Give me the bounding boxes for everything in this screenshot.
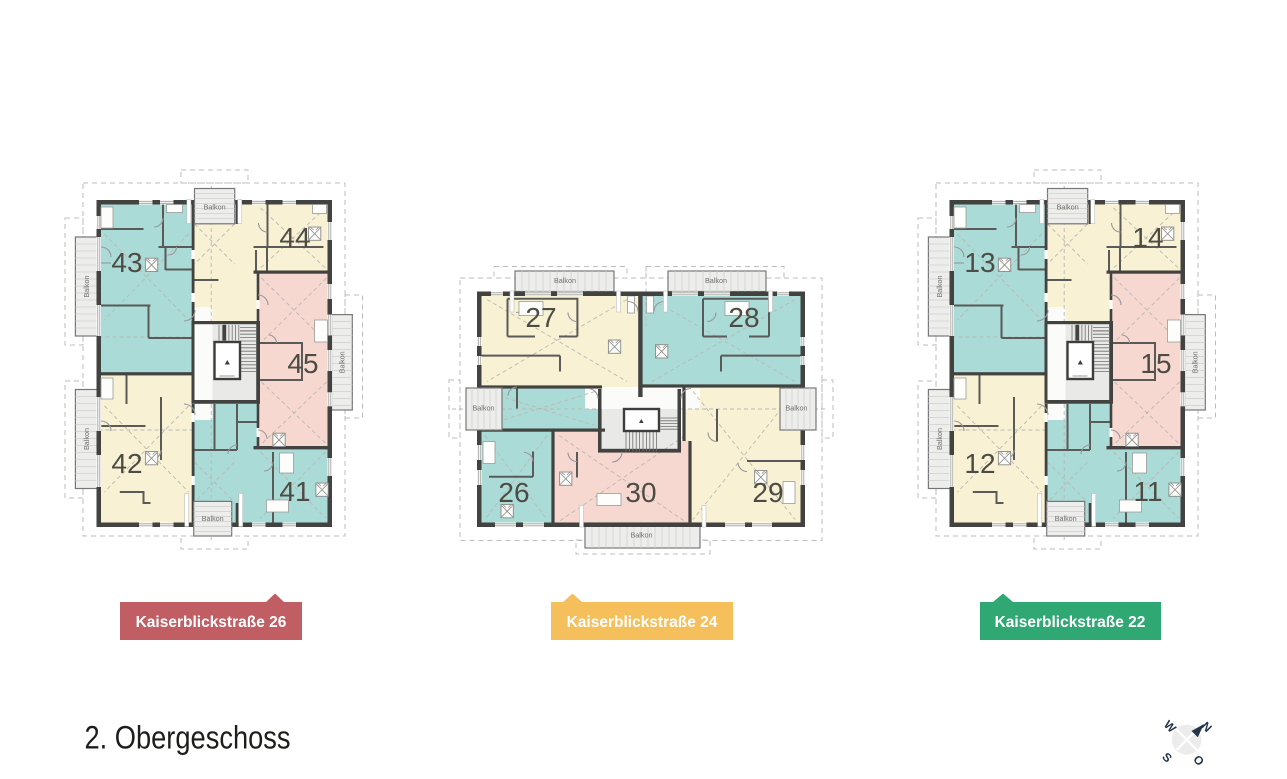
svg-text:2. Obergeschoss: 2. Obergeschoss	[85, 720, 291, 756]
svg-text:Balkon: Balkon	[786, 404, 808, 413]
svg-text:11: 11	[1133, 476, 1162, 507]
svg-text:44: 44	[279, 222, 310, 253]
svg-text:28: 28	[728, 302, 759, 333]
svg-text:42: 42	[111, 448, 142, 479]
svg-text:Balkon: Balkon	[204, 203, 226, 212]
svg-text:Balkon: Balkon	[1057, 203, 1079, 212]
svg-text:30: 30	[625, 477, 656, 508]
svg-text:45: 45	[287, 348, 318, 379]
svg-text:Kaiserblickstraße 22: Kaiserblickstraße 22	[995, 614, 1146, 631]
svg-text:26: 26	[498, 477, 529, 508]
svg-text:Balkon: Balkon	[705, 276, 727, 285]
svg-text:Balkon: Balkon	[202, 514, 224, 523]
svg-text:Balkon: Balkon	[935, 276, 944, 298]
svg-text:29: 29	[752, 477, 783, 508]
svg-text:Balkon: Balkon	[473, 404, 495, 413]
svg-text:Balkon: Balkon	[82, 276, 91, 298]
svg-text:O: O	[1190, 752, 1207, 769]
svg-text:Balkon: Balkon	[631, 531, 653, 540]
svg-text:Balkon: Balkon	[82, 428, 91, 450]
svg-text:Balkon: Balkon	[1055, 514, 1077, 523]
svg-text:Balkon: Balkon	[935, 428, 944, 450]
svg-text:27: 27	[525, 302, 556, 333]
svg-text:Balkon: Balkon	[554, 276, 576, 285]
svg-text:41: 41	[279, 476, 310, 507]
svg-text:Kaiserblickstraße 26: Kaiserblickstraße 26	[136, 614, 287, 631]
svg-text:13: 13	[964, 247, 995, 278]
svg-text:Kaiserblickstraße 24: Kaiserblickstraße 24	[567, 614, 718, 631]
svg-text:14: 14	[1132, 222, 1163, 253]
svg-text:Balkon: Balkon	[337, 351, 346, 373]
svg-text:15: 15	[1140, 348, 1171, 379]
svg-text:N: N	[1199, 719, 1215, 735]
svg-text:Balkon: Balkon	[1190, 351, 1199, 373]
svg-text:S: S	[1159, 750, 1175, 766]
svg-text:12: 12	[964, 448, 995, 479]
svg-text:43: 43	[111, 247, 142, 278]
